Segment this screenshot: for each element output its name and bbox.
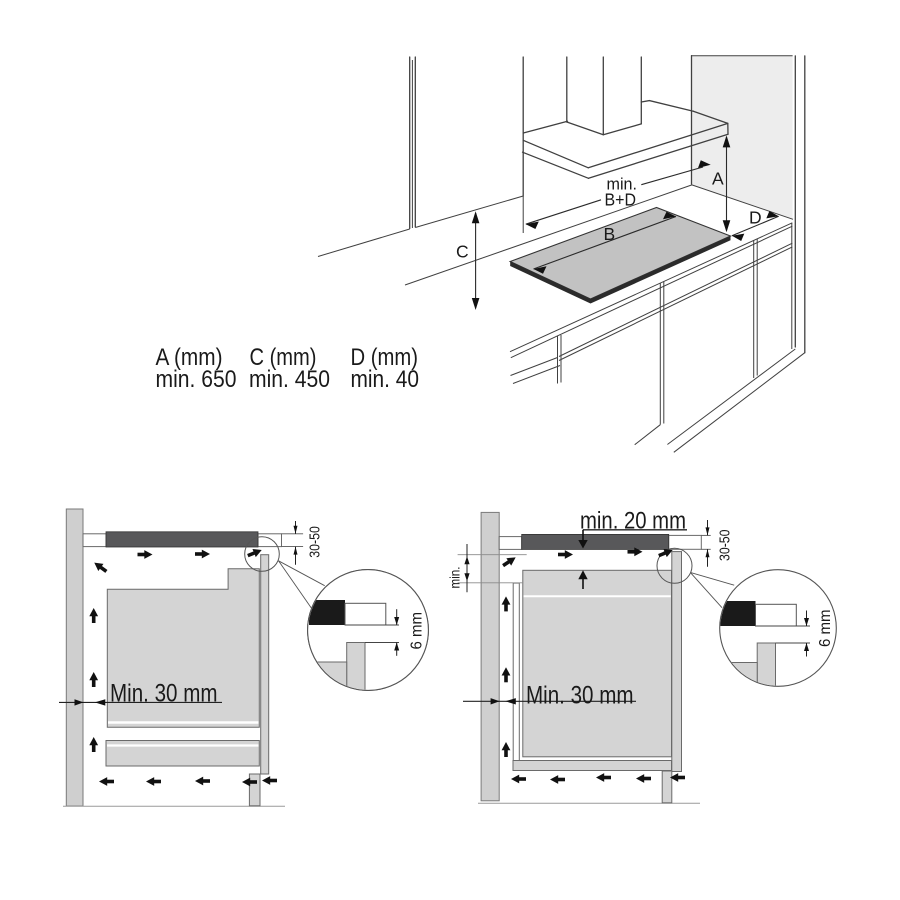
svg-text:30-50: 30-50 bbox=[718, 530, 734, 562]
svg-text:6 mm: 6 mm bbox=[409, 612, 426, 650]
svg-text:C: C bbox=[456, 242, 469, 262]
svg-text:A: A bbox=[712, 169, 724, 189]
svg-text:30-50: 30-50 bbox=[308, 526, 324, 558]
svg-text:min. 450: min. 450 bbox=[249, 366, 330, 393]
svg-text:min. 20 mm: min. 20 mm bbox=[580, 508, 686, 535]
svg-text:min. 40: min. 40 bbox=[351, 366, 420, 393]
svg-text:D: D bbox=[749, 208, 762, 228]
svg-text:6 mm: 6 mm bbox=[817, 610, 834, 648]
svg-text:Min. 30 mm: Min. 30 mm bbox=[110, 680, 218, 708]
svg-text:Min. 30 mm: Min. 30 mm bbox=[526, 682, 634, 710]
svg-text:B+D: B+D bbox=[605, 190, 637, 210]
svg-text:min.: min. bbox=[448, 567, 463, 589]
svg-text:min. 650: min. 650 bbox=[156, 366, 237, 393]
svg-text:B: B bbox=[604, 224, 616, 244]
